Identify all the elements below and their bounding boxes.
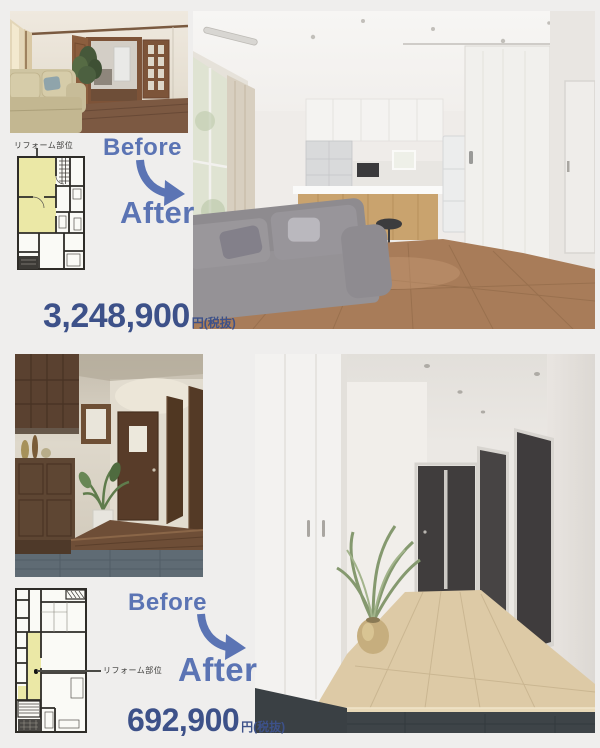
after-label-living: After <box>120 195 195 231</box>
before-photo-living-room <box>10 11 188 133</box>
price-living: 3,248,900円(税抜) <box>43 297 236 336</box>
reform-brochure-page: リフォーム部位 <box>0 0 600 748</box>
after-living-illustration <box>193 11 595 329</box>
before-living-illustration <box>10 11 188 133</box>
after-photo-hallway <box>255 354 595 733</box>
floor-plan-living <box>17 156 85 270</box>
plan-area-label-hallway: リフォーム部位 <box>103 665 162 676</box>
sofa-shape <box>10 69 86 133</box>
before-photo-hallway <box>15 354 203 577</box>
after-photo-living-room <box>193 11 595 329</box>
price-tax-note: 円(税抜) <box>192 314 236 331</box>
plan-area-label-living: リフォーム部位 <box>14 140 73 151</box>
price-tax-note: 円(税抜) <box>241 718 285 735</box>
before-hallway-illustration <box>15 354 203 577</box>
price-amount: 692,900 <box>127 702 239 739</box>
after-hallway-illustration <box>255 354 595 733</box>
price-amount: 3,248,900 <box>43 297 190 336</box>
plan-pointer-line <box>37 670 101 672</box>
price-hallway: 692,900円(税抜) <box>127 702 285 739</box>
after-label-hallway: After <box>178 651 258 689</box>
floor-plan-hallway <box>15 588 87 733</box>
